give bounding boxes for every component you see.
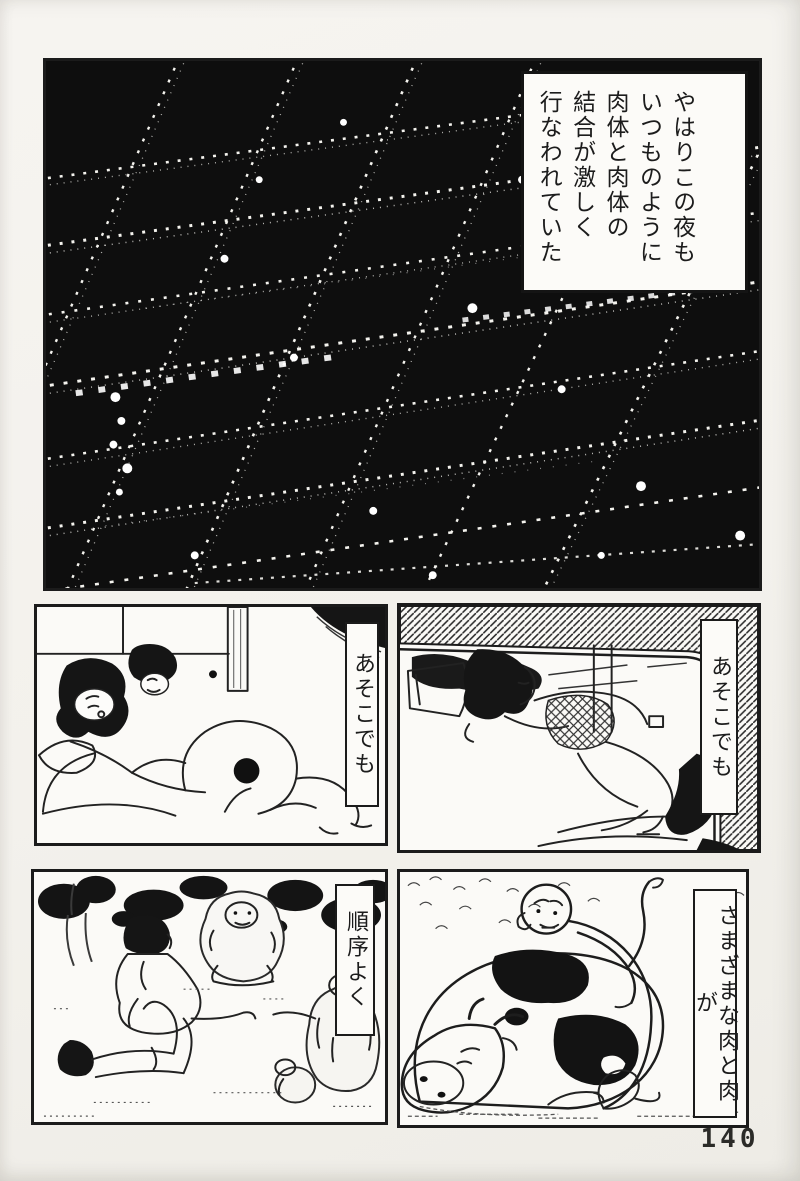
futon-and-pillow bbox=[39, 740, 175, 815]
bedroom-art bbox=[37, 607, 385, 843]
caption-text-bedroom: あそこでも bbox=[351, 652, 373, 777]
page-number: 140 bbox=[700, 1124, 760, 1154]
panel-car: あそこでも bbox=[397, 603, 761, 853]
narration-box: やはりこの夜も いつものように 肉体と肉体の 結合が激しく 行なわれていた bbox=[521, 71, 748, 293]
caption-strip-bedroom: あそこでも bbox=[345, 622, 379, 807]
caption-text-park: 順序よく bbox=[344, 910, 366, 1010]
manga-page: やはりこの夜も いつものように 肉体と肉体の 結合が激しく 行なわれていた bbox=[0, 0, 800, 1181]
caption-text-car: あそこでも bbox=[708, 655, 730, 780]
park-art bbox=[34, 872, 385, 1122]
caption-strip-car: あそこでも bbox=[700, 619, 738, 815]
caption-strip-park: 順序よく bbox=[335, 884, 375, 1036]
panel-cityscape: やはりこの夜も いつものように 肉体と肉体の 結合が激しく 行なわれていた bbox=[43, 58, 762, 591]
caption-strip-cow: さまざまな肉と肉が bbox=[693, 889, 737, 1118]
panel-cow: さまざまな肉と肉が bbox=[397, 869, 749, 1128]
panel-bedroom: あそこでも bbox=[34, 604, 388, 846]
panel-park: 順序よく bbox=[31, 869, 388, 1125]
narration-text: やはりこの夜も いつものように 肉体と肉体の 結合が激しく 行なわれていた bbox=[535, 90, 694, 265]
caption-text-cow: さまざまな肉と肉が bbox=[693, 901, 737, 1106]
cow-figure bbox=[402, 878, 663, 1112]
